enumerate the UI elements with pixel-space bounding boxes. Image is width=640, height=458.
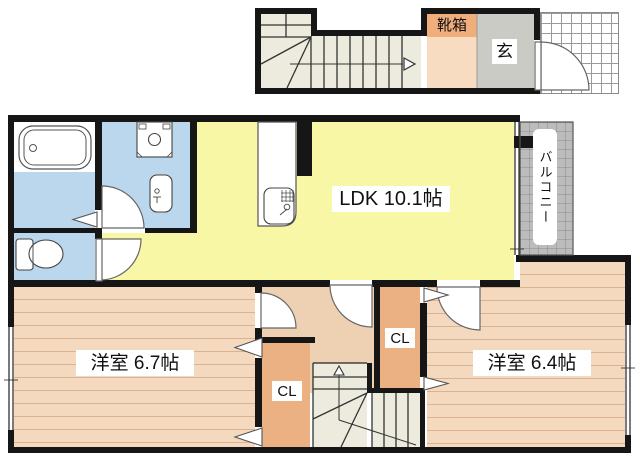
lower-stairs-floor	[313, 363, 367, 447]
bathroom-floor	[14, 122, 95, 228]
balcony-label: バルコニー	[533, 129, 557, 245]
bedroom-west-label: 洋室 6.7帖	[76, 350, 194, 376]
ldk-hall-strip	[102, 233, 197, 280]
upper-stairs-floor	[261, 14, 311, 88]
shoe-box-label: 靴箱	[432, 16, 472, 35]
upper-stairs-floor2	[311, 36, 421, 88]
ldk-label: LDK 10.1帖	[332, 186, 450, 212]
shoe-box-floor	[427, 37, 477, 88]
entrance-porch	[540, 12, 619, 94]
lower-stairs-floor2	[372, 393, 420, 447]
closet-east-label: CL	[385, 328, 415, 348]
floor-plan: LDK 10.1帖 洋室 6.7帖 洋室 6.4帖 CL CL バルコニー 靴箱…	[0, 0, 640, 458]
washroom-floor	[102, 122, 190, 228]
toilet-floor	[14, 233, 95, 280]
bedroom-east-label: 洋室 6.4帖	[473, 350, 591, 376]
closet-west-label: CL	[272, 381, 302, 401]
genkan-label: 玄	[492, 39, 517, 64]
